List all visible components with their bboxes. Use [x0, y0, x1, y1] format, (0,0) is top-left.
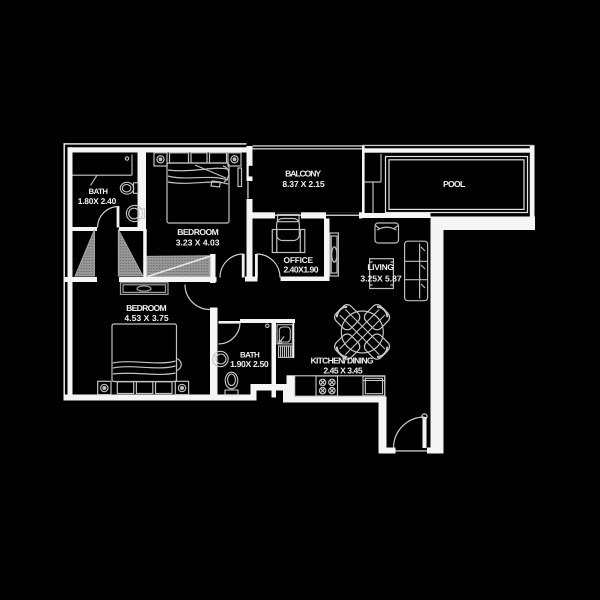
svg-text:1.80X 2.40: 1.80X 2.40 [78, 196, 117, 206]
svg-text:BEDROOM: BEDROOM [177, 227, 219, 237]
svg-text:3.25X 5.87: 3.25X 5.87 [360, 273, 401, 283]
svg-text:KITCHEN/ DINING: KITCHEN/ DINING [311, 356, 374, 366]
svg-text:1.90X 2.50: 1.90X 2.50 [230, 359, 269, 369]
svg-text:OFFICE: OFFICE [284, 255, 314, 265]
svg-text:2.40X1.90: 2.40X1.90 [284, 265, 319, 275]
svg-text:4.53 X 3.75: 4.53 X 3.75 [124, 313, 169, 323]
svg-text:POOL: POOL [443, 179, 465, 189]
svg-text:2.45 X 3.45: 2.45 X 3.45 [323, 365, 362, 375]
svg-text:BATH: BATH [89, 187, 109, 196]
svg-text:3.23 X 4.03: 3.23 X 4.03 [176, 237, 220, 247]
svg-text:BEDROOM: BEDROOM [126, 303, 167, 313]
svg-text:BALCONY: BALCONY [285, 168, 321, 178]
svg-text:LIVING: LIVING [367, 262, 394, 272]
svg-text:8.37 X 2.15: 8.37 X 2.15 [282, 179, 324, 189]
